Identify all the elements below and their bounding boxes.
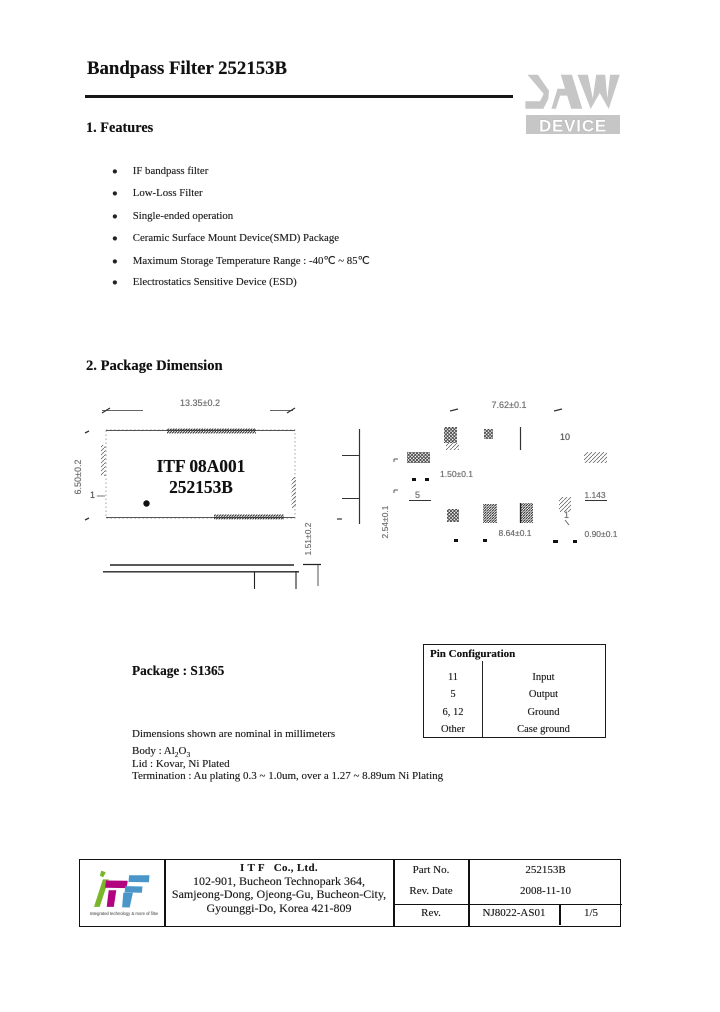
svg-text:10: 10 bbox=[560, 432, 570, 442]
svg-text:Integrated technology & more o: Integrated technology & more of filters bbox=[90, 911, 158, 916]
svg-text:6.50±0.2: 6.50±0.2 bbox=[73, 460, 83, 495]
svg-text:13.35±0.2: 13.35±0.2 bbox=[180, 398, 220, 408]
svg-text:2.54±0.1: 2.54±0.1 bbox=[380, 505, 390, 538]
svg-text:DEVICE: DEVICE bbox=[539, 117, 607, 136]
svg-text:1: 1 bbox=[90, 490, 95, 500]
svg-text:ITF 08A001: ITF 08A001 bbox=[157, 456, 246, 476]
svg-text:1.143: 1.143 bbox=[584, 490, 606, 500]
svg-text:1.50±0.1: 1.50±0.1 bbox=[440, 469, 473, 479]
svg-text:7.62±0.1: 7.62±0.1 bbox=[492, 400, 527, 410]
svg-text:1.51±0.2: 1.51±0.2 bbox=[303, 522, 313, 555]
svg-text:0.90±0.1: 0.90±0.1 bbox=[584, 529, 617, 539]
svg-text:252153B: 252153B bbox=[169, 477, 233, 497]
svg-text:5: 5 bbox=[415, 490, 420, 500]
svg-text:8.64±0.1: 8.64±0.1 bbox=[498, 528, 531, 538]
svg-text:1: 1 bbox=[564, 510, 569, 520]
